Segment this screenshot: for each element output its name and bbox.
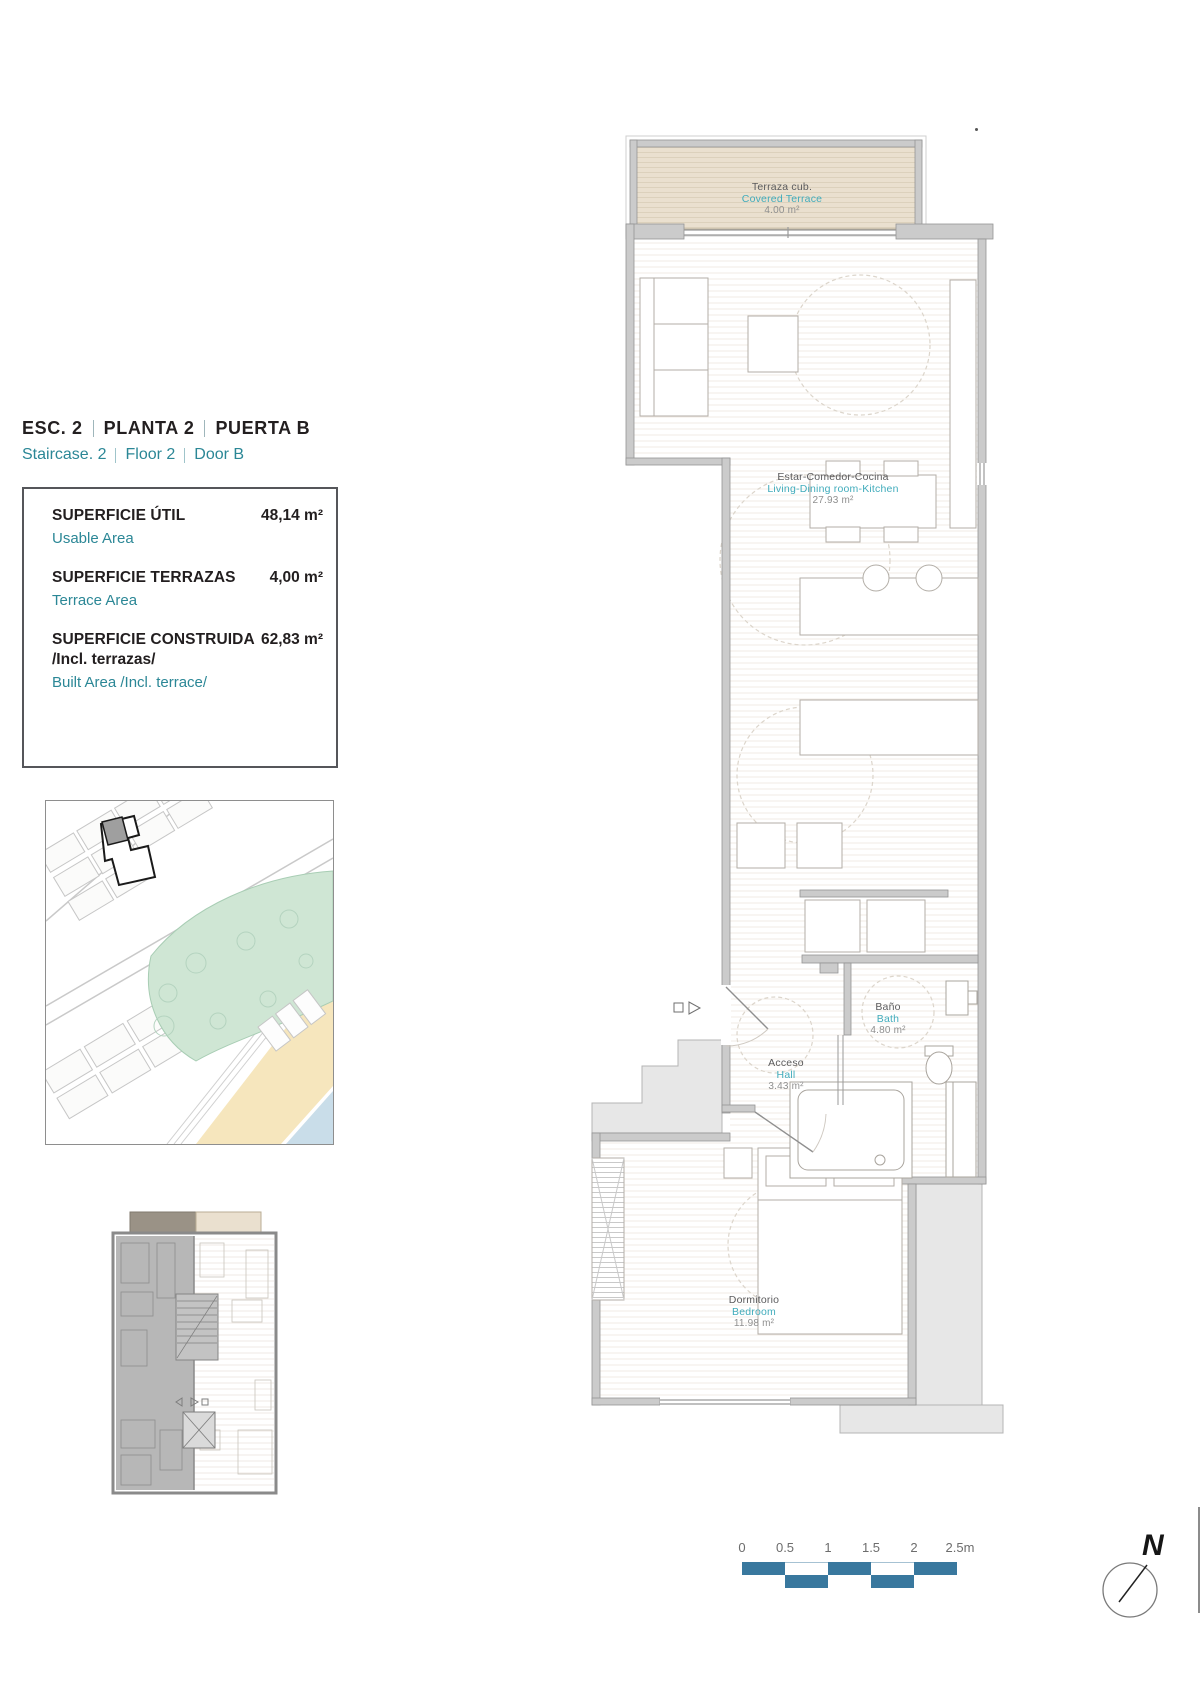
subtitle-staircase: Staircase. 2 [22, 446, 106, 464]
room-area: 11.98 m² [704, 1318, 804, 1330]
sofa [640, 278, 708, 416]
area-row-built: SUPERFICIE CONSTRUIDA /Incl. terrazas/ B… [52, 630, 323, 692]
room-label-hall: Acceso Hall 3.43 m² [736, 1057, 836, 1093]
entry-marker-arrow [689, 1002, 700, 1014]
keyplan-terrace-other [130, 1212, 196, 1233]
north-arrow: N [1090, 1515, 1200, 1625]
room-name-en: Hall [736, 1069, 836, 1081]
label-es: SUPERFICIE ÚTIL [52, 506, 255, 526]
scale-tick-label: 2 [910, 1540, 917, 1555]
tall-unit [805, 900, 860, 952]
keyplan-terrace-unit-b [196, 1212, 261, 1232]
plan-sheet: ESC. 2 PLANTA 2 PUERTA B Staircase. 2 Fl… [0, 0, 1203, 1704]
plan-header: ESC. 2 PLANTA 2 PUERTA B Staircase. 2 Fl… [22, 418, 310, 464]
room-area: 27.93 m² [733, 495, 933, 507]
scale-tick-label: 1.5 [862, 1540, 880, 1555]
bath-sink [946, 981, 968, 1015]
keyplan-unit-b-floor [194, 1236, 274, 1490]
label-note: /Incl. terrazas/ [52, 650, 255, 670]
divider [204, 420, 205, 437]
kitchen-counter-low [800, 700, 978, 755]
entry-opening [721, 985, 731, 1045]
page-subtitle: Staircase. 2 Floor 2 Door B [22, 446, 310, 464]
bathtub-inner [798, 1090, 904, 1170]
divider [115, 448, 116, 463]
title-esc: ESC. 2 [22, 418, 83, 439]
scale-segment [914, 1562, 957, 1575]
area-row-labels: SUPERFICIE TERRAZAS Terrace Area [52, 568, 264, 610]
neighbor-area-bottom [840, 1405, 1003, 1433]
room-area: 4.00 m² [692, 205, 872, 217]
bathtub-drain [875, 1155, 885, 1165]
area-row-labels: SUPERFICIE ÚTIL Usable Area [52, 506, 255, 548]
label-es: SUPERFICIE TERRAZAS [52, 568, 264, 588]
scale-tick-label: 2.5m [946, 1540, 975, 1555]
compass-circle [1103, 1563, 1157, 1617]
toilet [926, 1052, 952, 1084]
coffee-table [748, 316, 798, 372]
room-name-es: Terraza cub. [692, 181, 872, 193]
scale-segment [785, 1575, 828, 1588]
area-row-terrace: SUPERFICIE TERRAZAS Terrace Area 4,00 m² [52, 568, 323, 610]
stair-landing [592, 1040, 722, 1133]
kitchen-cabinet [797, 823, 842, 868]
divider [184, 448, 185, 463]
scale-segment [871, 1575, 914, 1588]
entry-marker-square [674, 1003, 683, 1012]
north-label: N [1142, 1529, 1165, 1562]
label-en: Usable Area [52, 529, 255, 548]
map-content [45, 800, 333, 1144]
entrance-direction-marker [674, 1002, 700, 1014]
bedroom-window-bottom [660, 1397, 790, 1406]
scale-segment [742, 1562, 785, 1575]
label-es: SUPERFICIE CONSTRUIDA [52, 630, 255, 650]
room-name-es: Acceso [736, 1057, 836, 1069]
area-row-labels: SUPERFICIE CONSTRUIDA /Incl. terrazas/ B… [52, 630, 255, 692]
page-title: ESC. 2 PLANTA 2 PUERTA B [22, 418, 310, 439]
key-plan [108, 1208, 280, 1500]
neighbor-area-right [916, 1184, 982, 1405]
kitchen-sink [916, 565, 942, 591]
kitchen-sink [863, 565, 889, 591]
title-planta: PLANTA 2 [104, 418, 195, 439]
label-en: Terrace Area [52, 591, 264, 610]
room-name-en: Covered Terrace [692, 193, 872, 205]
subtitle-floor: Floor 2 [125, 446, 175, 464]
main-floor-plan [555, 120, 1015, 1450]
tall-unit [867, 900, 925, 952]
divider [93, 420, 94, 437]
area-summary-box: SUPERFICIE ÚTIL Usable Area 48,14 m² SUP… [22, 487, 338, 768]
room-area: 3.43 m² [736, 1081, 836, 1093]
room-label-covered-terrace: Terraza cub. Covered Terrace 4.00 m² [692, 181, 872, 217]
area-value: 4,00 m² [270, 568, 323, 588]
kitchen-cabinet [737, 823, 785, 868]
area-row-usable: SUPERFICIE ÚTIL Usable Area 48,14 m² [52, 506, 323, 548]
kitchen-island [800, 578, 978, 635]
area-value: 48,14 m² [261, 506, 323, 526]
area-value: 62,83 m² [261, 630, 323, 650]
kitchen-counter-right [950, 280, 976, 528]
living-window-right [977, 463, 987, 485]
room-label-bedroom: Dormitorio Bedroom 11.98 m² [704, 1294, 804, 1330]
nightstand [724, 1148, 752, 1178]
room-name-en: Bath [838, 1013, 938, 1025]
shower-column [946, 1082, 976, 1177]
label-en: Built Area /Incl. terrace/ [52, 673, 255, 692]
subtitle-door: Door B [194, 446, 244, 464]
room-name-es: Baño [838, 1001, 938, 1013]
room-name-en: Bedroom [704, 1306, 804, 1318]
scale-segment [828, 1562, 871, 1575]
room-name-es: Dormitorio [704, 1294, 804, 1306]
compass-needle [1119, 1565, 1147, 1602]
title-puerta: PUERTA B [215, 418, 310, 439]
scale-bar: 0 0.5 1 1.5 2 2.5m [730, 1540, 980, 1596]
room-area: 4.80 m² [838, 1025, 938, 1037]
scale-tick-label: 1 [824, 1540, 831, 1555]
stray-mark [975, 128, 978, 131]
scale-tick-label: 0 [738, 1540, 745, 1555]
bath-sink-tap [968, 991, 977, 1004]
room-label-bath: Baño Bath 4.80 m² [838, 1001, 938, 1037]
room-label-living: Estar-Comedor-Cocina Living-Dining room-… [733, 471, 933, 507]
scale-tick-label: 0.5 [776, 1540, 794, 1555]
room-name-es: Estar-Comedor-Cocina [733, 471, 933, 483]
site-location-map [45, 800, 334, 1145]
room-name-en: Living-Dining room-Kitchen [733, 483, 933, 495]
page-edge-line [1198, 1507, 1200, 1613]
